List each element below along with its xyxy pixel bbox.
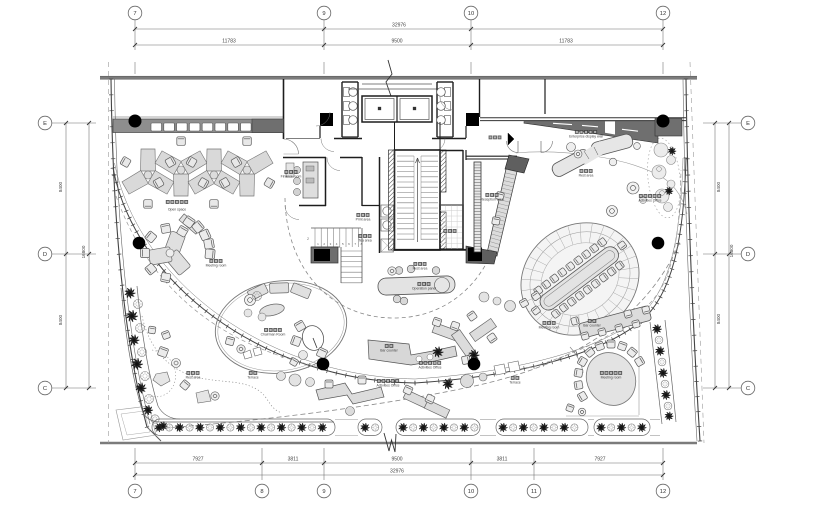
svg-text:Chairman Room: Chairman Room (261, 333, 286, 337)
svg-text:Bar counter: Bar counter (583, 324, 601, 328)
svg-text:11: 11 (531, 489, 537, 495)
svg-text:11783: 11783 (222, 39, 236, 45)
svg-text:Finance room: Finance room (281, 175, 302, 179)
svg-text:7927: 7927 (594, 457, 605, 463)
svg-text:3811: 3811 (497, 457, 508, 463)
svg-text:Activities Office: Activities Office (376, 384, 399, 388)
svg-text:10: 10 (468, 11, 474, 17)
svg-text:Meeting room: Meeting room (601, 376, 622, 380)
svg-text:32976: 32976 (392, 23, 406, 29)
svg-text:Meeting room: Meeting room (206, 264, 227, 268)
svg-text:3811: 3811 (288, 457, 299, 463)
svg-text:10: 10 (468, 489, 474, 495)
svg-text:Tea area: Tea area (358, 239, 371, 243)
svg-text:Enterprise display wall: Enterprise display wall (569, 135, 603, 139)
svg-text:Rest area: Rest area (186, 376, 201, 380)
svg-text:D: D (746, 252, 750, 258)
svg-text:Print area: Print area (356, 218, 371, 222)
svg-text:E: E (746, 121, 750, 127)
svg-text:8400: 8400 (58, 314, 63, 325)
svg-text:8400: 8400 (716, 181, 721, 192)
svg-text:Terrace: Terrace (247, 376, 258, 380)
svg-text:11783: 11783 (559, 39, 573, 45)
svg-text:8: 8 (260, 489, 263, 495)
svg-text:9500: 9500 (391, 39, 402, 45)
svg-text:7: 7 (133, 11, 136, 17)
svg-text:7: 7 (133, 489, 136, 495)
svg-text:Bar counter: Bar counter (380, 349, 398, 353)
svg-text:Rest area: Rest area (579, 174, 594, 178)
svg-text:9500: 9500 (391, 457, 402, 463)
svg-text:7927: 7927 (192, 457, 203, 463)
svg-text:C: C (746, 386, 750, 392)
svg-text:12: 12 (660, 489, 666, 495)
svg-text:E: E (43, 121, 47, 127)
svg-text:9: 9 (322, 11, 325, 17)
svg-text:D: D (43, 252, 47, 258)
svg-text:Reception area: Reception area (481, 198, 504, 202)
svg-text:Activities Office: Activities Office (638, 199, 661, 203)
svg-text:12: 12 (660, 11, 666, 17)
svg-text:16800: 16800 (729, 244, 734, 257)
svg-text:Rest area: Rest area (413, 267, 428, 271)
svg-text:Meeting room: Meeting room (539, 326, 560, 330)
svg-text:Operation panel: Operation panel (412, 287, 436, 291)
svg-text:Activities Office: Activities Office (418, 366, 441, 370)
svg-text:C: C (43, 386, 47, 392)
svg-text:Open space: Open space (168, 208, 186, 212)
svg-text:8400: 8400 (716, 313, 721, 324)
svg-text:16800: 16800 (81, 245, 86, 258)
svg-text:8400: 8400 (58, 181, 63, 192)
svg-text:Terrace: Terrace (509, 381, 520, 385)
svg-text:2: 2 (307, 237, 309, 241)
svg-text:32976: 32976 (390, 469, 404, 475)
svg-text:9: 9 (322, 489, 325, 495)
